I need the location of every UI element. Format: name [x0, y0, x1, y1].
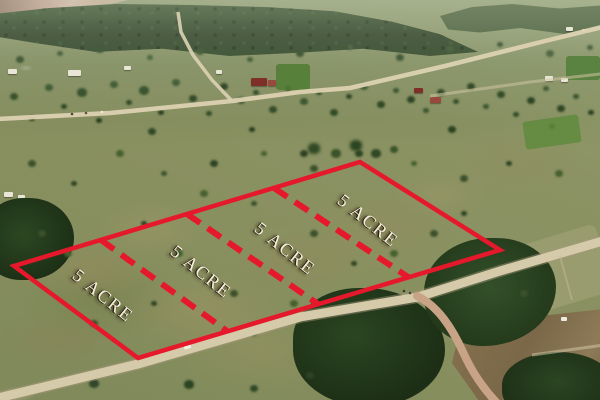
figure — [403, 290, 406, 293]
figure — [409, 292, 412, 295]
road-speck — [101, 111, 103, 113]
road-path — [532, 345, 600, 355]
road-speck — [71, 113, 74, 116]
road-speck — [85, 112, 88, 115]
annotation-overlay — [0, 0, 600, 400]
road-branch — [417, 296, 496, 400]
road-north-spur — [178, 12, 232, 101]
road-upper — [0, 27, 600, 119]
aerial-photo: 5 ACRE 5 ACRE 5 ACRE 5 ACRE — [0, 0, 600, 400]
car — [561, 317, 567, 321]
road-faint — [430, 74, 600, 96]
fence-track — [560, 256, 572, 300]
